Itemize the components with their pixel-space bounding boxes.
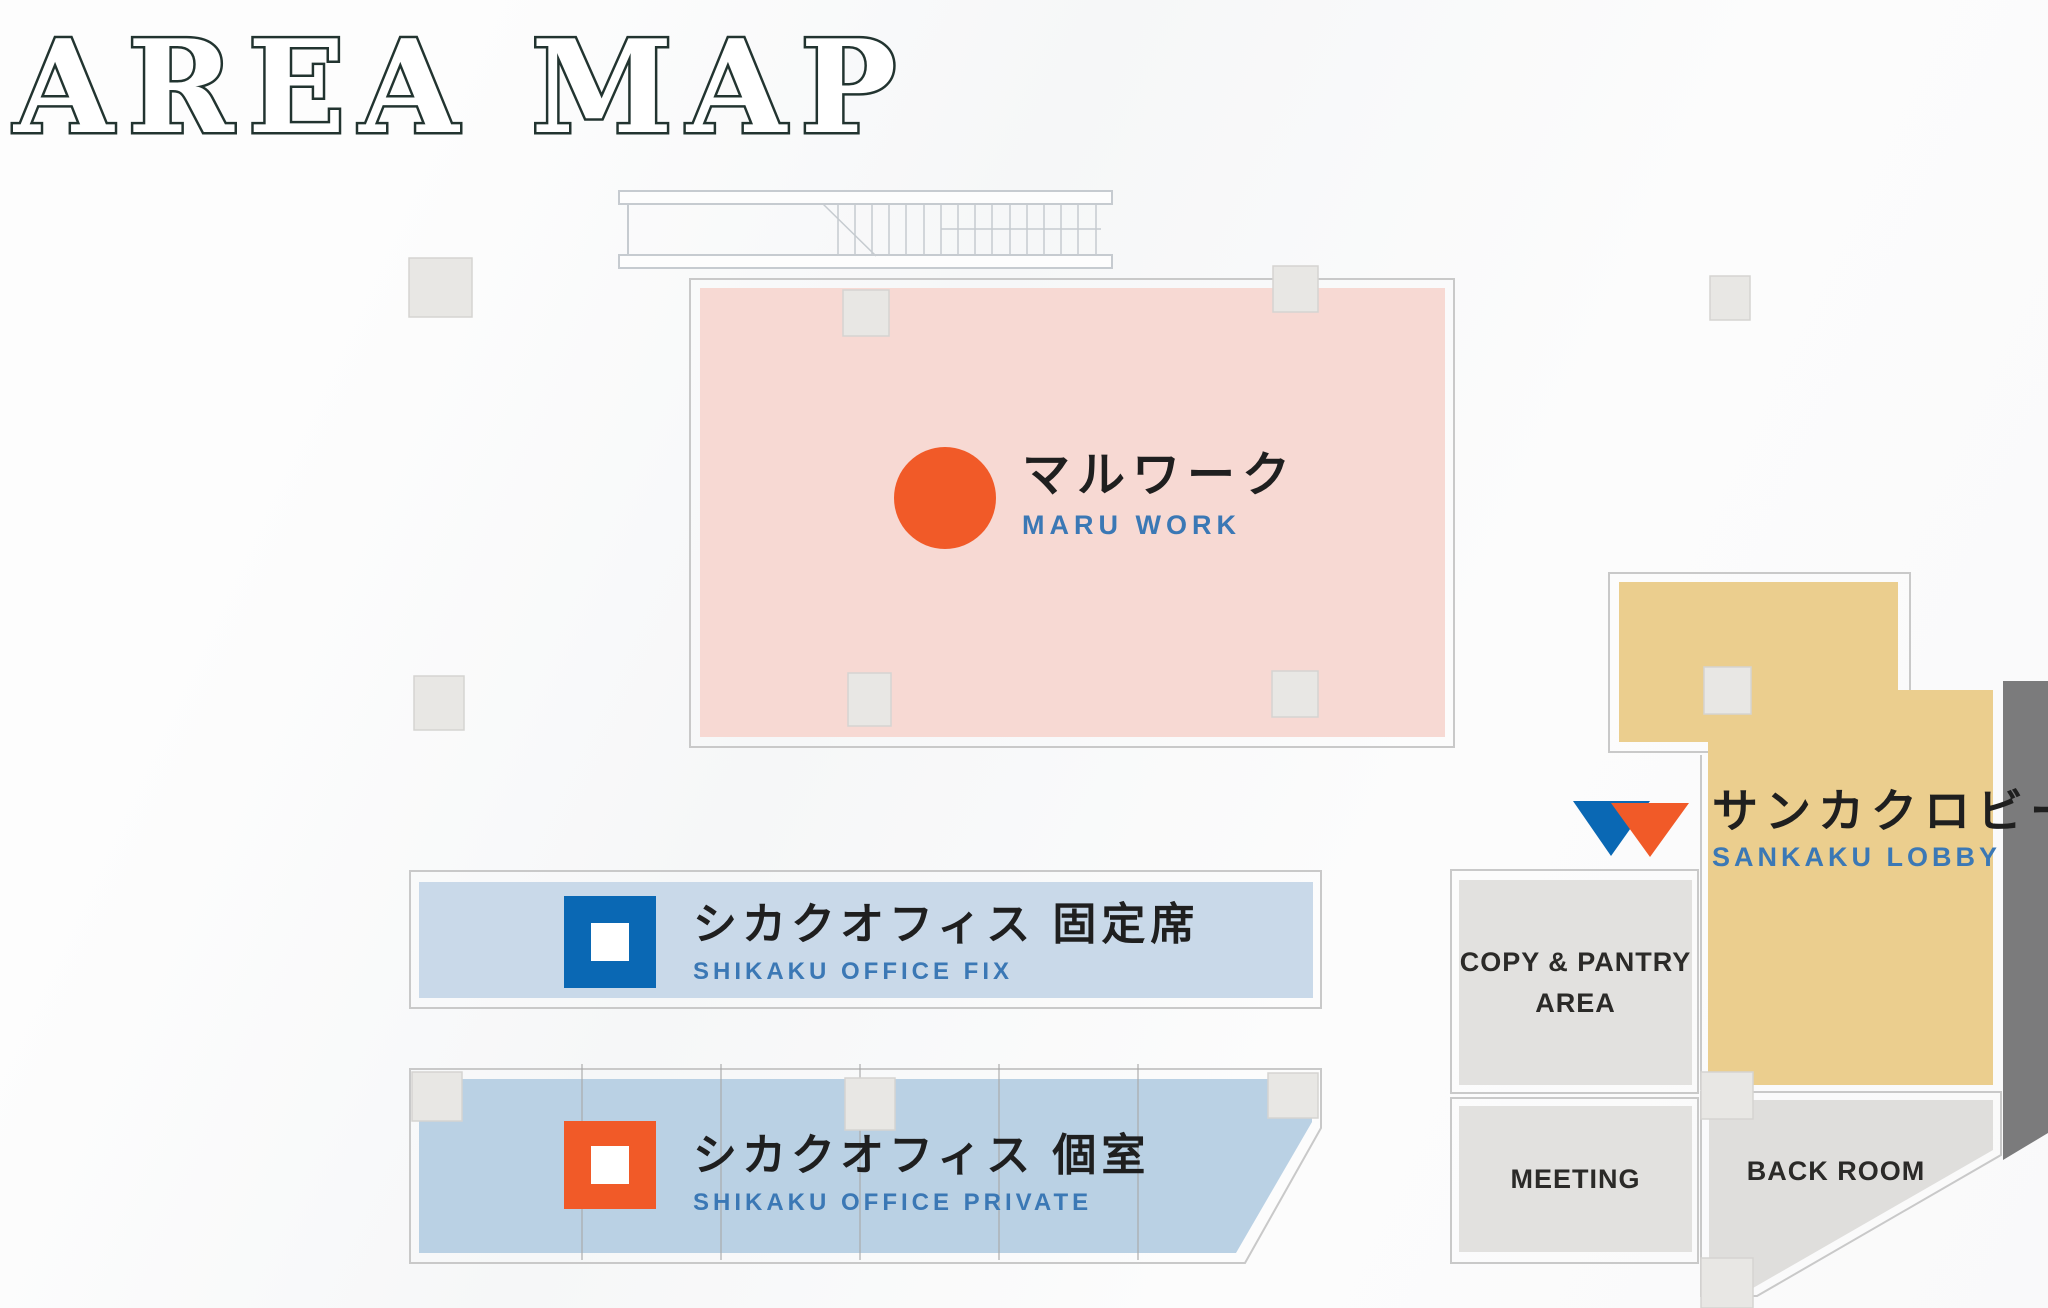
lobby-upper-area xyxy=(1619,582,1898,742)
pillar xyxy=(1268,1073,1318,1118)
pillar xyxy=(1710,276,1750,320)
floor-map: AREA MAP xyxy=(0,0,2048,1308)
pillar xyxy=(1273,266,1318,312)
pillar xyxy=(845,1078,895,1130)
staircase-top-rail xyxy=(619,191,1112,204)
staircase-break-line xyxy=(823,204,876,256)
pillar xyxy=(414,676,464,730)
maru-circle-icon xyxy=(894,447,996,549)
pillar xyxy=(1704,667,1751,714)
shikaku-fix-square-icon-inner xyxy=(591,923,629,961)
shikaku-private-square-icon-inner xyxy=(591,1146,629,1184)
area-map-page: AREA MAP マルワーク MARU WORK シカクオフィス 固定席 SHI… xyxy=(0,0,2048,1308)
pillar xyxy=(409,258,472,317)
sankaku-triangles-icon xyxy=(1573,801,1689,857)
pillar xyxy=(843,290,889,336)
meeting-area xyxy=(1459,1106,1692,1252)
pillar xyxy=(848,673,891,726)
copy-pantry-area xyxy=(1459,880,1692,1085)
maru-work-area xyxy=(700,288,1445,737)
page-title: AREA MAP xyxy=(13,13,910,163)
staircase xyxy=(619,191,1112,268)
pillar xyxy=(412,1072,462,1121)
pillar xyxy=(1272,671,1318,717)
sankaku-lobby-area xyxy=(1708,690,1993,1085)
shikaku-fix-area xyxy=(419,882,1313,998)
right-wall-band xyxy=(2003,681,2048,1160)
pillar xyxy=(1701,1258,1753,1308)
staircase-bottom-rail xyxy=(619,255,1112,268)
pillar xyxy=(1701,1072,1753,1119)
